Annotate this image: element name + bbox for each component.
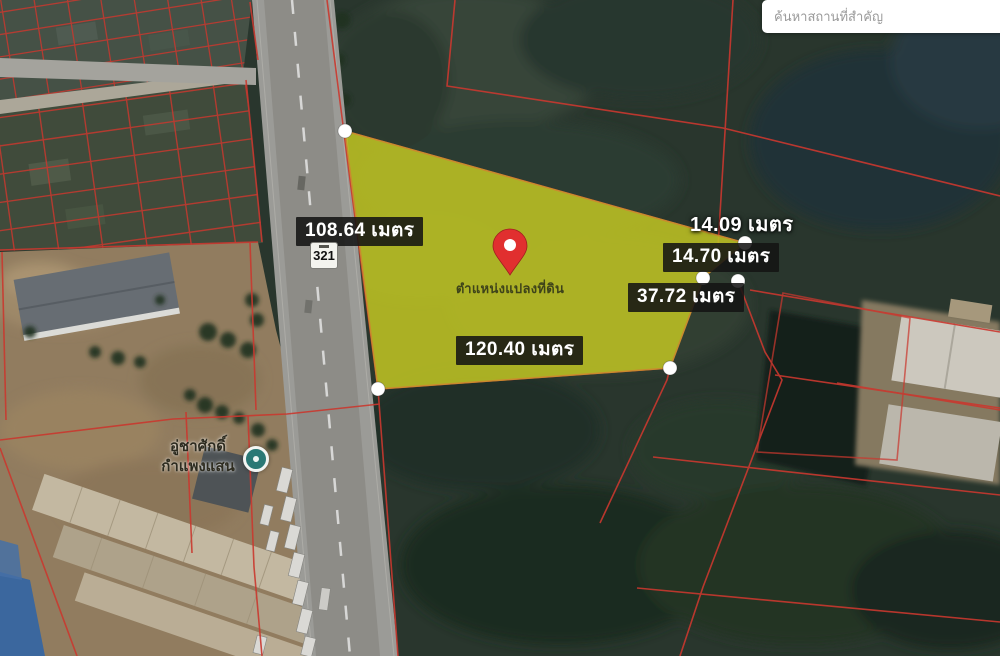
plot-marker-caption: ตำแหน่งแปลงที่ดิน xyxy=(430,278,590,299)
measurement-east-upper: 14.70 เมตร xyxy=(663,243,779,272)
satellite-map-canvas[interactable] xyxy=(0,0,1000,656)
measurement-east-lower: 37.72 เมตร xyxy=(628,283,744,312)
search-input[interactable] xyxy=(762,0,1000,33)
map-viewport[interactable]: 108.64 เมตร 14.09 เมตร 14.70 เมตร 37.72 … xyxy=(0,0,1000,656)
highway-shield-number: 321 xyxy=(313,248,335,263)
poi-name-line1: อู่ชาศักดิ์ xyxy=(148,437,248,457)
poi-label[interactable]: อู่ชาศักดิ์ กำแพงแสน xyxy=(148,437,248,477)
poi-name-line2: กำแพงแสน xyxy=(148,457,248,477)
poi-marker-dot-icon xyxy=(253,456,259,462)
highway-shield-321: 321 xyxy=(310,242,338,269)
measurement-south: 120.40 เมตร xyxy=(456,336,583,365)
measurement-northeast: 14.09 เมตร xyxy=(690,212,793,238)
